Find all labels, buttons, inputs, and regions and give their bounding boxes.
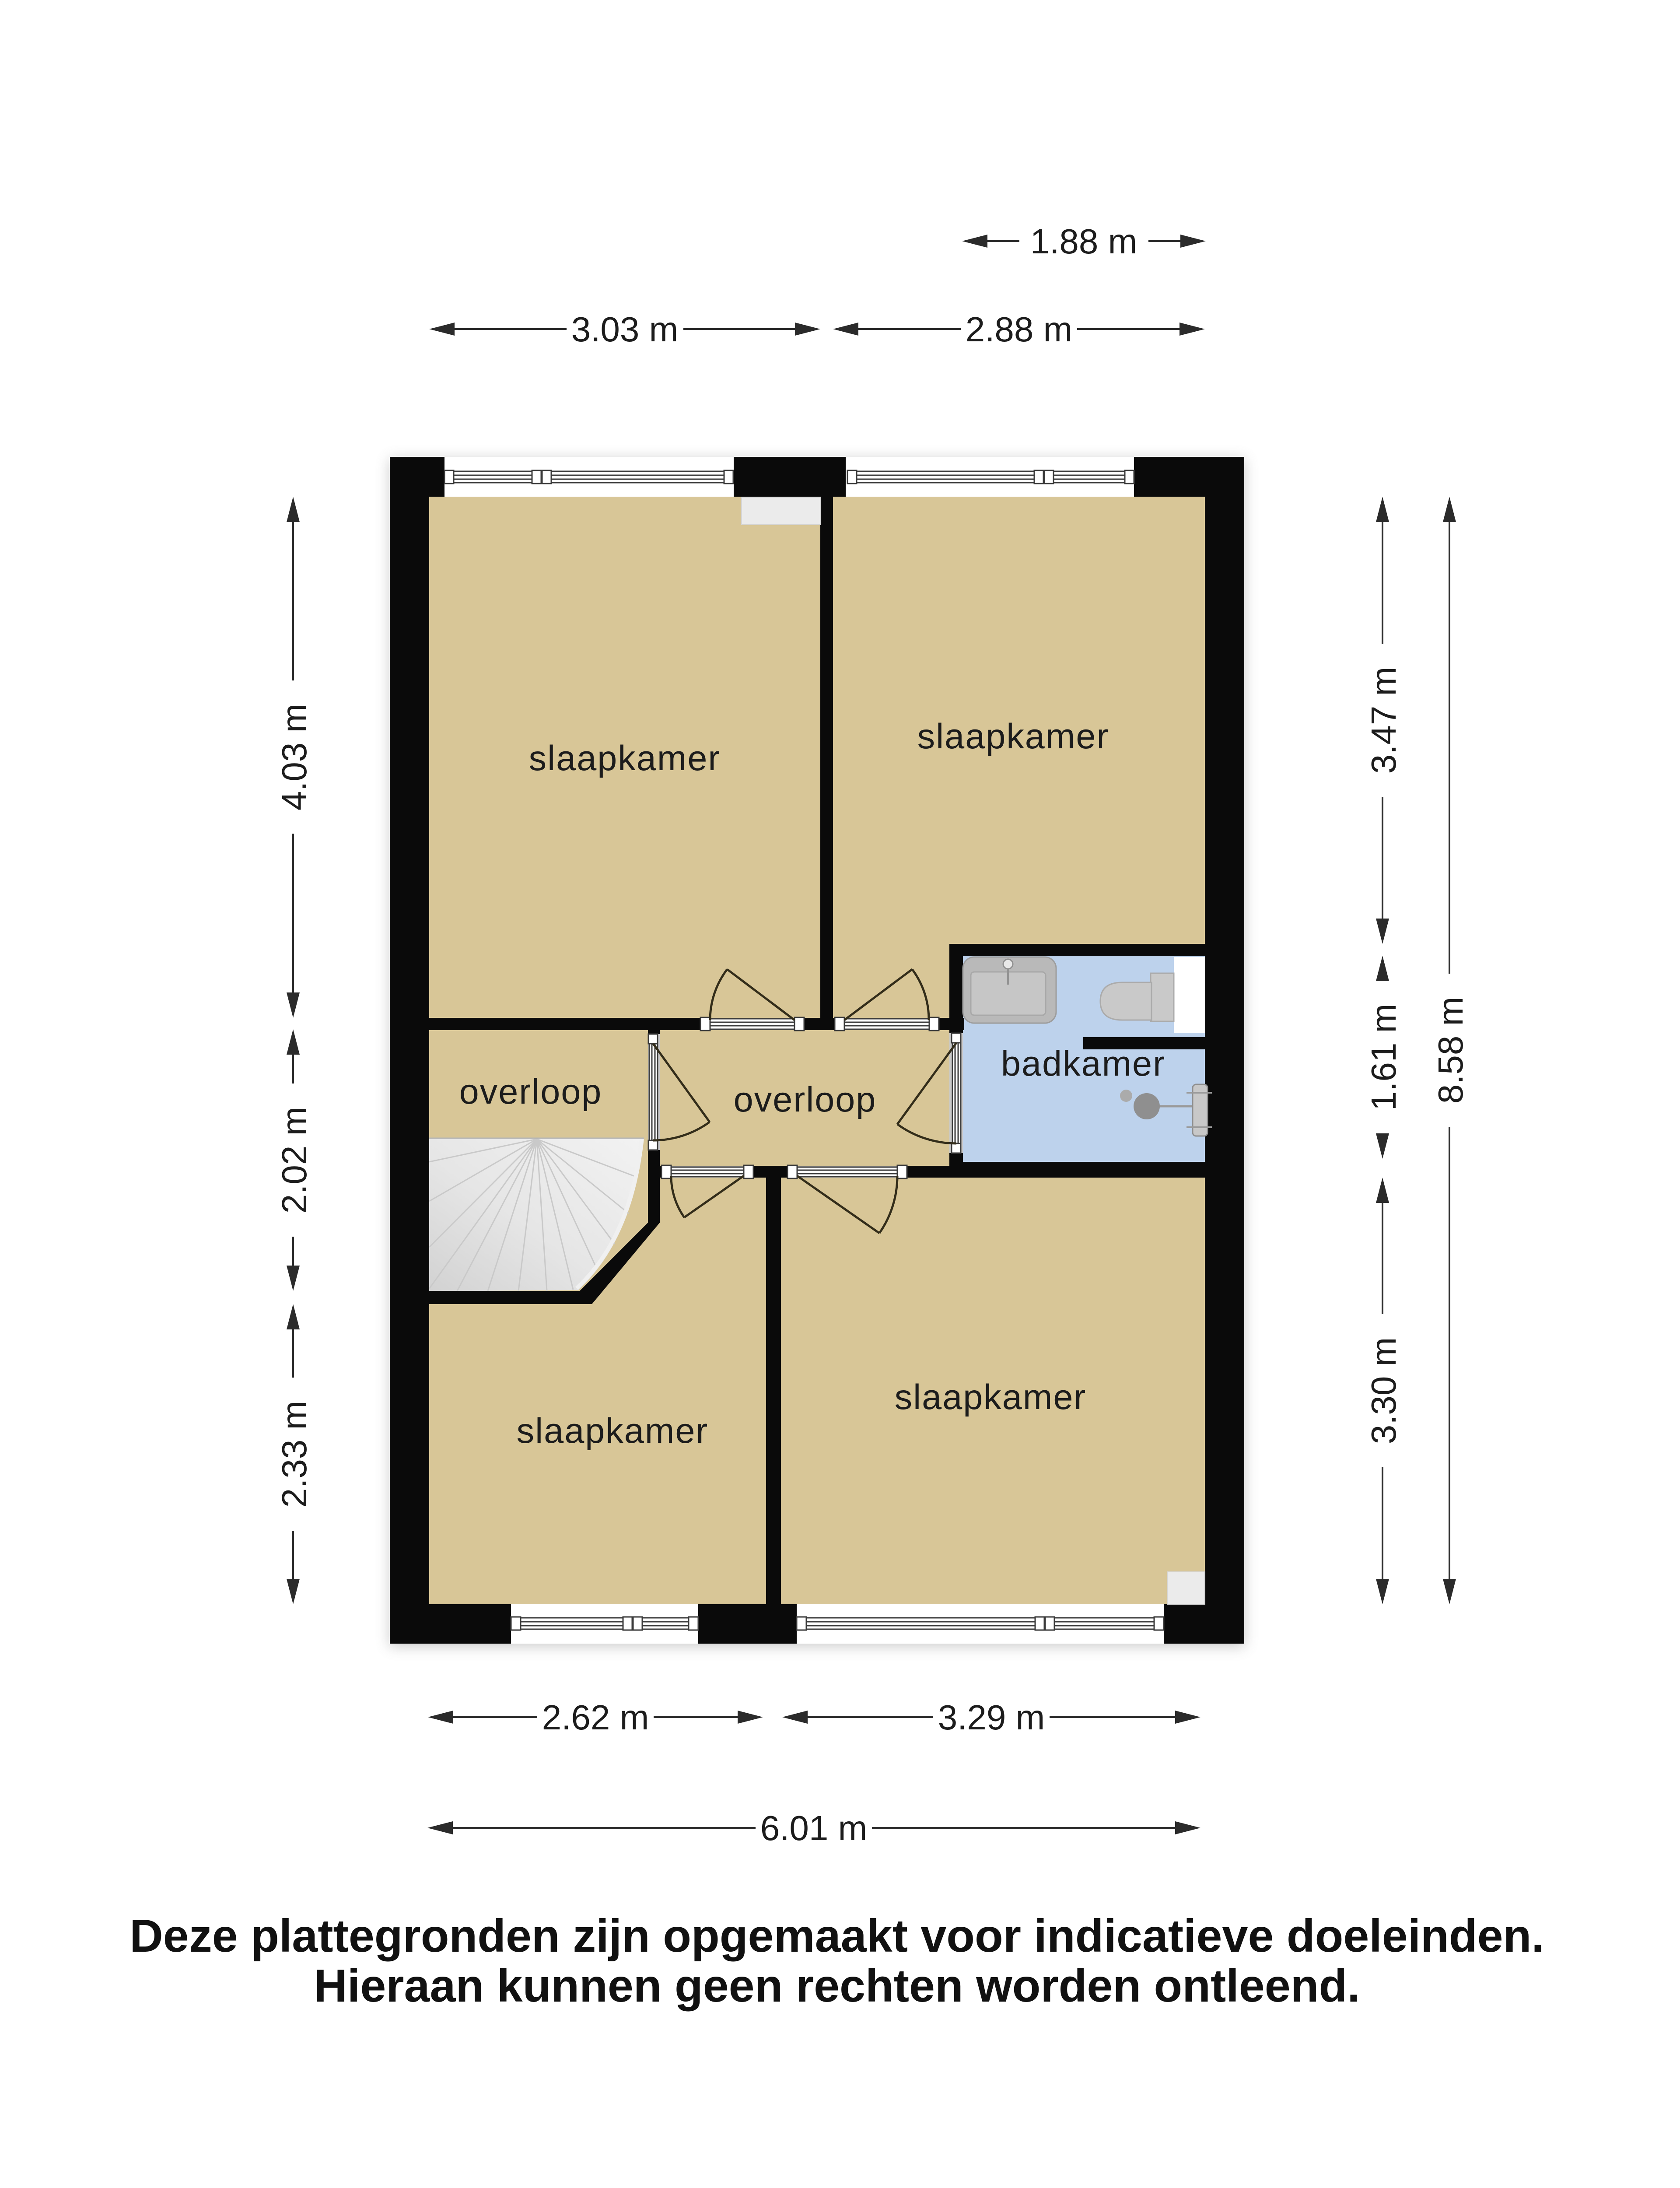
svg-text:Hieraan kunnen geen rechten wo: Hieraan kunnen geen rechten worden ontle…	[314, 1960, 1360, 2012]
svg-text:1.61 m: 1.61 m	[1364, 1004, 1403, 1111]
svg-text:3.30 m: 3.30 m	[1364, 1337, 1403, 1445]
svg-text:slaapkamer: slaapkamer	[529, 739, 721, 778]
svg-text:8.58 m: 8.58 m	[1431, 997, 1470, 1104]
svg-text:slaapkamer: slaapkamer	[517, 1411, 709, 1451]
svg-text:slaapkamer: slaapkamer	[895, 1378, 1087, 1417]
svg-text:2.62 m: 2.62 m	[542, 1698, 649, 1737]
svg-text:3.47 m: 3.47 m	[1364, 667, 1403, 774]
svg-text:4.03 m: 4.03 m	[275, 704, 314, 811]
svg-text:1.88 m: 1.88 m	[1030, 222, 1137, 261]
svg-text:Deze plattegronden zijn opgema: Deze plattegronden zijn opgemaakt voor i…	[129, 1910, 1544, 1962]
svg-text:3.29 m: 3.29 m	[938, 1698, 1045, 1737]
svg-text:slaapkamer: slaapkamer	[917, 717, 1109, 756]
svg-text:overloop: overloop	[734, 1080, 877, 1119]
svg-text:badkamer: badkamer	[1001, 1044, 1165, 1083]
svg-text:2.33 m: 2.33 m	[275, 1401, 314, 1508]
svg-text:2.88 m: 2.88 m	[966, 310, 1073, 349]
svg-text:3.03 m: 3.03 m	[571, 310, 679, 349]
svg-text:2.02 m: 2.02 m	[275, 1107, 314, 1214]
svg-text:overloop: overloop	[459, 1072, 602, 1112]
svg-text:6.01 m: 6.01 m	[760, 1809, 868, 1848]
